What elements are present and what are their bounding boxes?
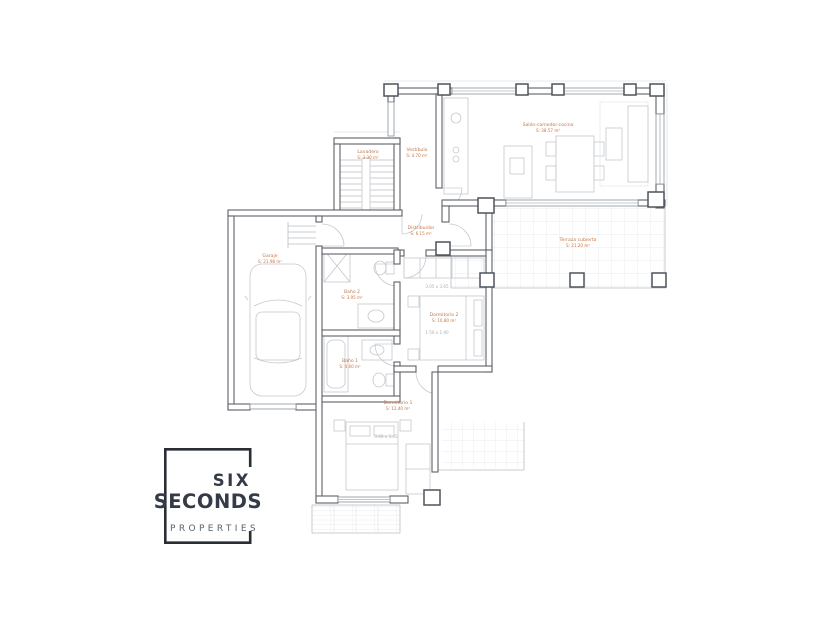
sofa-and-rug [600,102,648,186]
floor-plan-page: Lavadero S: 3.30 m² Vestíbulo S: 4.70 m²… [0,0,840,630]
room-label-salon-area: S: 38.57 m² [536,128,560,133]
room-label-bano1-area: S: 4.60 m² [339,364,361,369]
side-patio-paving [438,422,524,470]
room-label-lavadero-area: S: 3.30 m² [357,155,379,160]
floor-plan-drawing: Lavadero S: 3.30 m² Vestíbulo S: 4.70 m²… [0,0,840,630]
kitchen-counter [444,98,468,194]
bathroom2-fixtures [324,250,394,328]
room-label-dormitorio1-area: S: 12.40 m² [386,406,410,411]
dim-note-2: 1.50 x 1.90 [425,330,449,335]
logo-word-six: SIX [213,471,251,490]
garage-entry-steps [288,222,316,248]
dining-table [546,136,604,192]
room-label-bano2-area: S: 3.95 m² [341,295,363,300]
logo-word-seconds: SECONDS [154,490,262,513]
room-label-dormitorio2-area: S: 10.80 m² [432,318,456,323]
room-label-garaje-area: S: 21.98 m² [258,259,282,264]
car [245,264,311,396]
room-label-vestibulo-area: S: 4.70 m² [406,153,428,158]
six-seconds-logo: SIX SECONDS PROPERTIES [154,448,262,544]
room-label-distribuidor-area: S: 6.15 m² [410,231,432,236]
staircase [340,158,394,212]
logo-word-properties: PROPERTIES [170,524,259,534]
room-label-salon-name: Salón-comedor-cocina [523,121,574,128]
dim-note-3: 3.60 x 3.45 [374,434,398,439]
room-label-vestibulo-name: Vestíbulo [407,146,428,153]
bedroom1-furniture [334,420,430,494]
room-label-terraza-area: S: 21.20 m² [566,243,590,248]
dim-note-1: 3.05 x 3.65 [425,284,449,289]
porch-steps-paving [312,505,400,533]
kitchen-island [504,146,532,198]
